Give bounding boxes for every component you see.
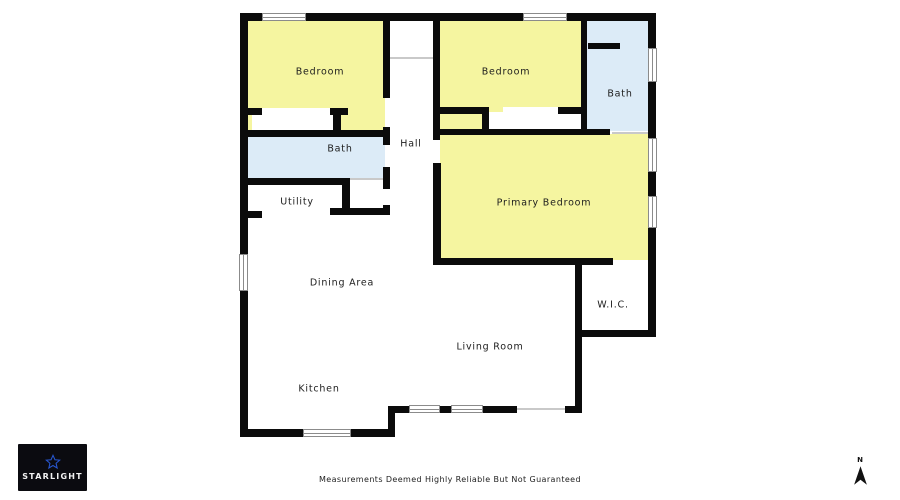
- compass-label: N: [857, 456, 863, 464]
- window: [451, 405, 483, 413]
- room-fill-bath-1: [246, 133, 385, 179]
- wall: [482, 107, 489, 135]
- window: [648, 48, 657, 82]
- wall: [248, 108, 262, 115]
- wall: [588, 43, 620, 49]
- door-opening: [350, 178, 383, 180]
- window: [523, 13, 567, 21]
- door-opening: [390, 57, 433, 59]
- room-label: Primary Bedroom: [497, 198, 592, 209]
- room-label: Bedroom: [482, 67, 531, 78]
- floor-plan: BedroomBedroomBathHallBathUtilityPrimary…: [0, 0, 900, 500]
- room-label: Utility: [280, 197, 314, 208]
- window-pane-line: [652, 49, 653, 81]
- window-pane-line: [452, 409, 482, 410]
- wall: [240, 211, 262, 218]
- window-pane-line: [304, 433, 350, 434]
- wall: [581, 21, 587, 135]
- wall: [240, 130, 390, 137]
- wall: [240, 178, 350, 185]
- room-fill-bath-2: [585, 19, 650, 131]
- north-arrow-icon: [852, 465, 869, 486]
- room-label: Dining Area: [310, 278, 374, 289]
- wall: [575, 330, 656, 337]
- window: [648, 196, 657, 228]
- wall: [240, 13, 248, 437]
- wall: [383, 127, 390, 145]
- door-opening: [517, 408, 565, 410]
- wall: [433, 163, 441, 263]
- window: [262, 13, 306, 21]
- room-label: W.I.C.: [597, 300, 629, 311]
- wall: [575, 262, 582, 413]
- closet-1-opening: [262, 108, 330, 116]
- wall: [433, 21, 440, 140]
- room-label: Bath: [327, 144, 352, 155]
- room-label: Living Room: [456, 342, 523, 353]
- closet-2-opening: [503, 107, 558, 115]
- window-pane-line: [410, 409, 439, 410]
- room-label: Bath: [607, 89, 632, 100]
- wall: [433, 258, 613, 265]
- window-pane-line: [652, 197, 653, 227]
- wall: [558, 107, 581, 114]
- room-label: Bedroom: [296, 67, 345, 78]
- room-label: Hall: [400, 139, 421, 150]
- window-pane-line: [524, 17, 566, 18]
- star-icon: [45, 454, 61, 470]
- door-opening: [612, 132, 648, 134]
- window: [303, 429, 351, 437]
- disclaimer-text: Measurements Deemed Highly Reliable But …: [0, 475, 900, 484]
- window-pane-line: [243, 255, 244, 290]
- window: [239, 254, 248, 291]
- wall: [388, 406, 395, 437]
- window: [648, 138, 657, 172]
- room-label: Kitchen: [298, 384, 339, 395]
- window-pane-line: [263, 17, 305, 18]
- wall: [383, 167, 390, 189]
- screenshot-canvas: BedroomBedroomBathHallBathUtilityPrimary…: [0, 0, 900, 500]
- wall: [383, 205, 390, 215]
- window-pane-line: [652, 139, 653, 171]
- compass: N: [846, 456, 874, 486]
- wall: [440, 107, 482, 114]
- wall: [330, 208, 390, 215]
- window: [409, 405, 440, 413]
- wall: [383, 21, 390, 98]
